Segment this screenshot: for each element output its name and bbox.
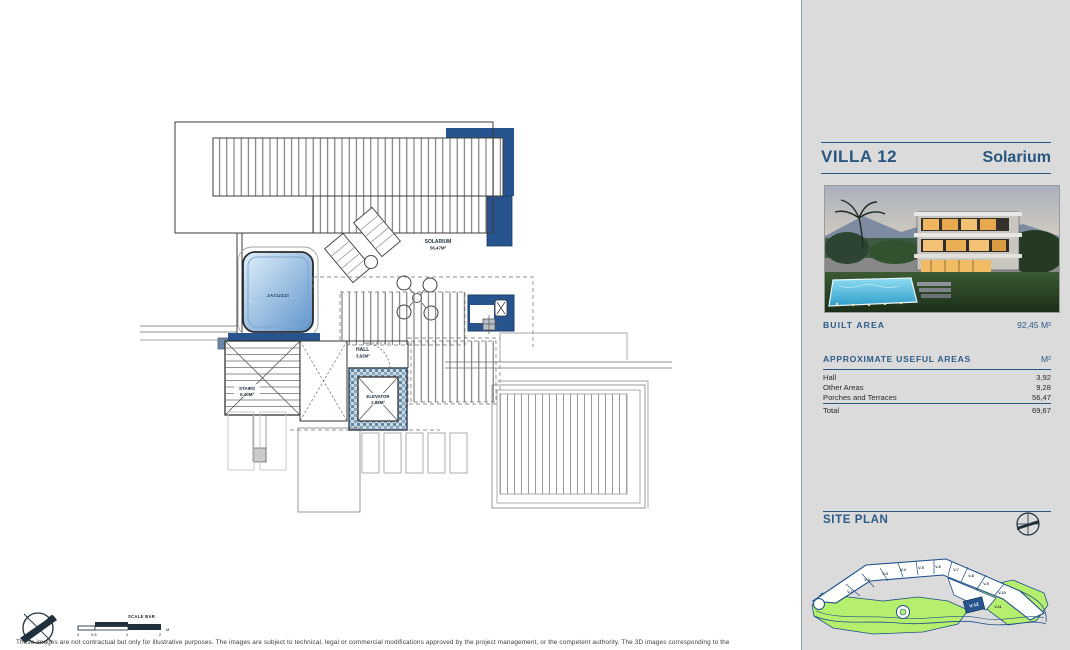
divider-line [821, 173, 1051, 174]
area-label: Other Areas [823, 383, 864, 392]
side-table [365, 256, 378, 269]
floor-plan-drawing: JACUZZI SOLARIUM 56,47M² [0, 0, 800, 650]
plot-label: V-7 [953, 568, 958, 572]
stairwell: STAIRS 6,40M² [225, 341, 300, 415]
roundabout [814, 599, 825, 610]
pergola-lower [492, 385, 645, 508]
jacuzzi-label: JACUZZI [267, 293, 289, 298]
title-row: VILLA 12 Solarium [821, 147, 1051, 167]
total-label: Total [823, 406, 839, 415]
scale-tick: 2 [159, 632, 162, 637]
plot-label: V-1 [847, 590, 852, 594]
elevator-area-value: 2,88M² [371, 400, 385, 405]
brochure-page: JACUZZI SOLARIUM 56,47M² [0, 0, 1070, 650]
divider-line [823, 369, 1051, 370]
plot-label: V-8 [968, 574, 973, 578]
site-plan-map: V-12 V-1 V-2 V-3 V-4 V-5 [806, 510, 1066, 648]
scale-tick: 0 [77, 632, 80, 637]
hall-wall-blue [228, 333, 320, 341]
useful-areas-header: APPROXIMATE USEFUL AREAS M² [823, 354, 1051, 364]
useful-areas-label: APPROXIMATE USEFUL AREAS [823, 354, 971, 364]
area-row: Other Areas 9,28 [823, 383, 1051, 392]
scale-unit: M [166, 627, 169, 632]
total-row: Total 69,67 [823, 406, 1051, 415]
plot-label: V-4 [900, 568, 905, 572]
roof-hatch-band-lower [313, 196, 487, 233]
roundabout-center [900, 609, 906, 615]
area-row: Porches and Terraces 56,47 [823, 393, 1051, 402]
area-row: Hall 3,92 [823, 373, 1051, 382]
stairs-label: STAIRS [239, 386, 255, 391]
hall-block: STAIRS 6,40M² HALL 3,92M² ELEVATOR 2,88M… [218, 333, 408, 430]
stairs-area-value: 6,40M² [240, 392, 254, 397]
scale-tick: 0,5 [91, 632, 97, 637]
divider-line [821, 142, 1051, 143]
villa-photo-illustration [825, 186, 1059, 312]
villa-photo [824, 185, 1060, 313]
area-value: 3,92 [1036, 373, 1051, 382]
exterior-steps-upper [340, 292, 465, 345]
disclaimer-text: These images are not contractual but onl… [16, 639, 796, 646]
divider-line [823, 403, 1051, 404]
total-value: 69,67 [1032, 406, 1051, 415]
plot-label: V-2 [864, 578, 869, 582]
hall-area-value: 3,92M² [356, 354, 370, 359]
built-area-label: BUILT AREA [823, 320, 885, 330]
plot-label: V-11 [994, 605, 1001, 609]
lower-floor-outlines [228, 412, 467, 512]
hall-label: HALL [356, 347, 369, 353]
scale-tick: 1 [126, 632, 129, 637]
jacuzzi: JACUZZI [238, 247, 318, 337]
area-value: 9,28 [1036, 383, 1051, 392]
built-area-value: 92,45 M² [1017, 320, 1051, 330]
info-sidebar: VILLA 12 Solarium [801, 0, 1070, 650]
exterior-steps-lower [411, 341, 496, 402]
roof-hatch-band-upper [213, 138, 503, 196]
built-area-row: BUILT AREA 92,45 M² [823, 320, 1051, 330]
kitchenette-unit [468, 295, 514, 334]
plot-label: V-6 [935, 565, 940, 569]
sun-lounger [325, 233, 372, 282]
solarium-area-value: 56,47M² [430, 246, 447, 251]
elevator: ELEVATOR 2,88M² [349, 368, 407, 430]
plot-label: V-5 [918, 566, 923, 570]
solarium-label: SOLARIUM [425, 239, 452, 245]
plot-label: V-3 [882, 572, 887, 576]
stair-void [300, 341, 347, 421]
scale-bar-label: SCALE BAR [128, 614, 155, 619]
plot-label: V-9 [983, 582, 988, 586]
useful-areas-unit: M² [1041, 354, 1051, 364]
plan-title: Solarium [983, 149, 1051, 167]
elevator-label: ELEVATOR [366, 394, 390, 399]
site-compass-icon [1017, 513, 1039, 535]
scale-bar: SCALE BAR 0 0,5 1 2 M [77, 614, 169, 637]
villa-title: VILLA 12 [821, 147, 897, 167]
area-label: Hall [823, 373, 836, 382]
area-value: 56,47 [1032, 393, 1051, 402]
plot-label: V-10 [998, 591, 1005, 595]
area-label: Porches and Terraces [823, 393, 897, 402]
